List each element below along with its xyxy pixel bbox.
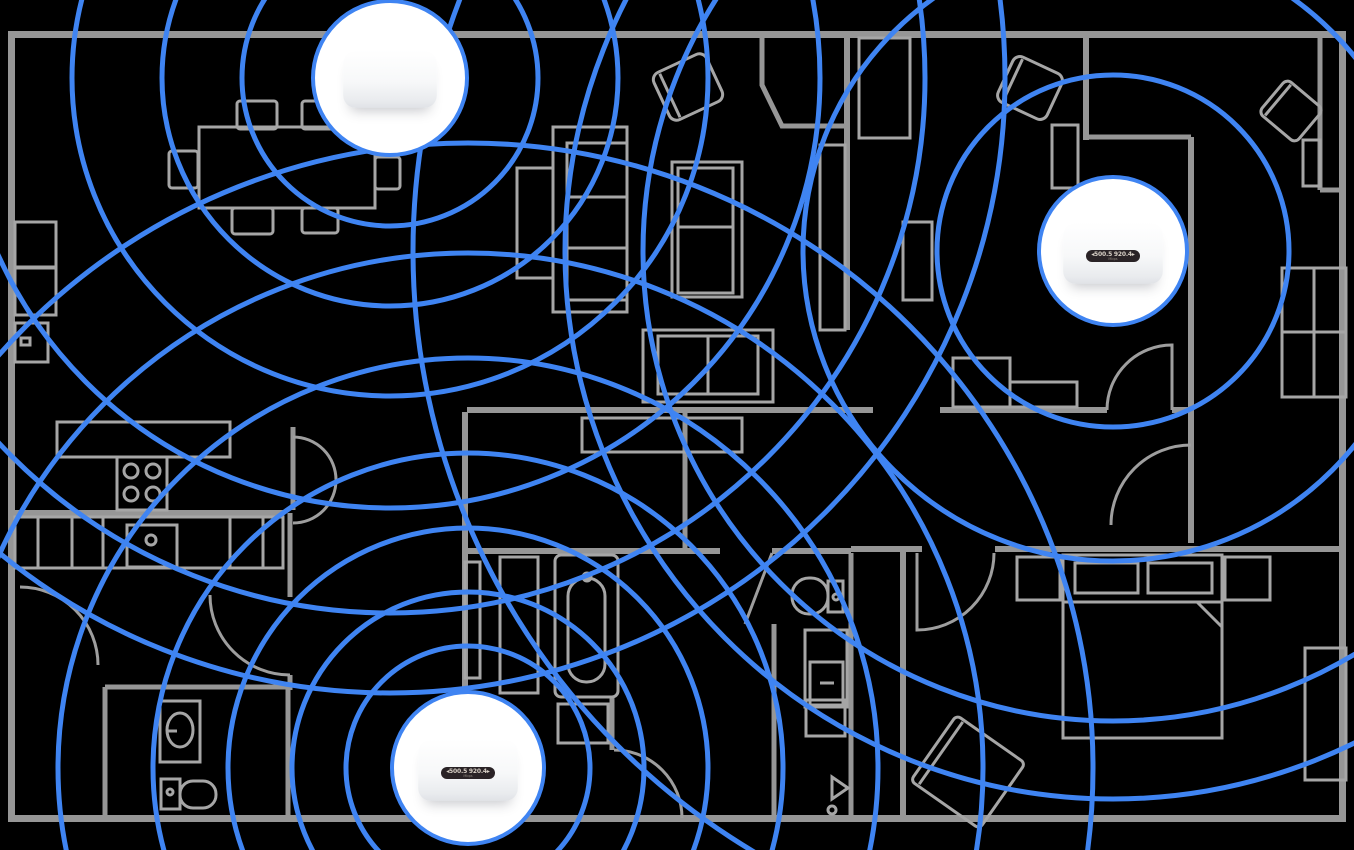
door-hallway — [1107, 345, 1172, 410]
stove — [117, 457, 167, 510]
mesh-point-device — [343, 50, 437, 108]
doors — [20, 345, 1191, 818]
signal-ring-instant-router-top-right — [565, 0, 1354, 799]
dining-chair — [375, 157, 400, 189]
device-display: ◂500.5 920.4▸Mbps — [1086, 250, 1139, 263]
bed — [1063, 555, 1222, 738]
toilet-flush — [167, 789, 173, 795]
door-bedroom — [917, 553, 994, 630]
wifi-coverage-floorplan: ◂500.5 920.4▸Mbps◂500.5 920.4▸Mbps — [0, 0, 1354, 850]
stove-burner — [124, 464, 138, 478]
instant-router-bottom-badge[interactable]: ◂500.5 920.4▸Mbps — [390, 690, 546, 846]
tv-console — [582, 418, 742, 452]
bookshelf-dividers — [1282, 268, 1346, 397]
wardrobe — [859, 38, 910, 138]
toilet-bowl — [180, 781, 216, 808]
desk — [1303, 140, 1320, 186]
instant-router-device: ◂500.5 920.4▸Mbps — [418, 739, 518, 801]
cabinet — [15, 222, 56, 267]
instant-router-device: ◂500.5 920.4▸Mbps — [1063, 222, 1163, 284]
dishwasher-knob — [146, 535, 156, 545]
pillow — [1148, 563, 1212, 593]
bedroom-chair — [911, 715, 1026, 829]
door-tub-bathroom — [614, 750, 682, 818]
drain-symbol — [828, 806, 836, 814]
device-throughput-unit: Mbps — [463, 775, 472, 779]
pillow — [1075, 563, 1138, 593]
instant-router-top-right-badge[interactable]: ◂500.5 920.4▸Mbps — [1037, 175, 1189, 327]
door-bedroom-hall — [1111, 445, 1191, 525]
cabinet — [903, 222, 932, 300]
desk-chair — [1258, 79, 1323, 144]
desk — [1052, 125, 1078, 188]
stove-burner — [146, 464, 160, 478]
shelf — [820, 145, 845, 330]
door-kitchen-swing — [293, 437, 336, 523]
nightstand — [1017, 557, 1060, 600]
cabinet — [15, 268, 56, 315]
shower-symbol — [832, 777, 848, 799]
mesh-point-top-left-badge[interactable] — [311, 0, 469, 157]
floorplan-svg — [0, 0, 1354, 850]
appliance-handle — [21, 338, 30, 345]
nightstand — [1225, 557, 1270, 600]
stove-burner — [124, 487, 138, 501]
dining-chair — [232, 208, 273, 234]
device-display: ◂500.5 920.4▸Mbps — [441, 767, 494, 780]
sofa-cushion-lines — [567, 197, 627, 248]
device-throughput-unit: Mbps — [1108, 258, 1117, 262]
bed-sheet-fold — [1063, 602, 1222, 627]
